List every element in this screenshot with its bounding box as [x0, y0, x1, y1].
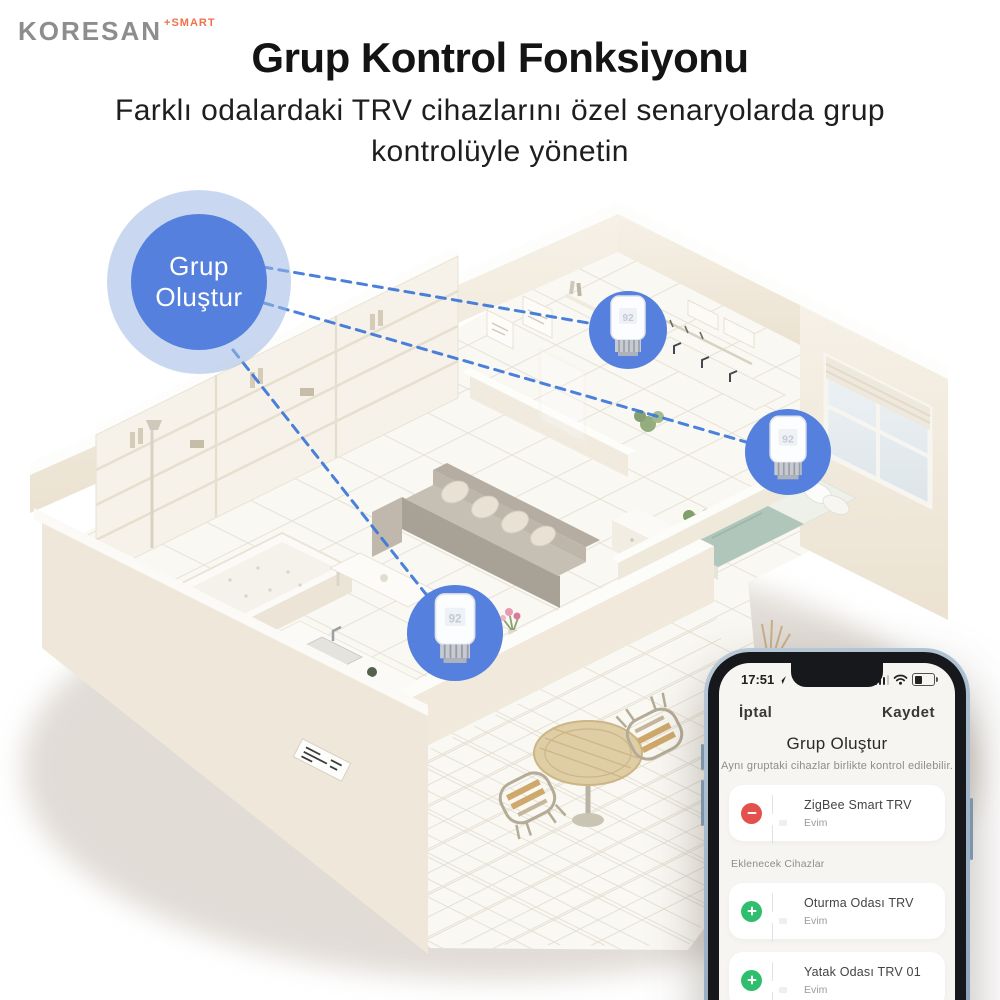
phone-bezel: 17:51 [708, 652, 966, 1000]
trv-thumbnail-icon [772, 963, 794, 997]
trv-marker-bedroom [745, 409, 831, 495]
status-time: 17:51 [741, 672, 774, 687]
device-location: Evim [804, 984, 921, 996]
headline: Grup Kontrol Fonksiyonu Farklı odalardak… [0, 34, 1000, 173]
brand-suffix: +SMART [164, 17, 216, 29]
callout-line1: Grup [169, 251, 229, 281]
sheet-nav: İptal Kaydet [719, 687, 955, 721]
poster-canvas: KORESAN+SMART Grup Kontrol Fonksiyonu Fa… [0, 0, 1000, 1000]
phone-volume-button [701, 780, 704, 826]
section-label: Eklenecek Cihazlar [731, 858, 955, 870]
trv-thumbnail-icon [772, 796, 794, 830]
page-subtitle: Farklı odalardaki TRV cihazlarını özel s… [0, 90, 1000, 173]
trv-marker-hallway [589, 291, 667, 369]
cancel-button[interactable]: İptal [739, 704, 772, 721]
available-device-card[interactable]: Yatak Odası TRV 01 Evim [729, 952, 945, 1000]
phone-mute-switch [701, 744, 704, 770]
trv-marker-living-room [407, 585, 503, 681]
device-location: Evim [804, 915, 914, 927]
add-device-button[interactable] [741, 970, 762, 991]
phone-notch [791, 663, 883, 687]
battery-icon [912, 673, 935, 686]
device-name: Oturma Odası TRV [804, 896, 914, 910]
wifi-icon [893, 674, 908, 685]
group-callout: Grup Oluştur [107, 190, 291, 374]
device-name: ZigBee Smart TRV [804, 798, 912, 812]
save-button[interactable]: Kaydet [882, 704, 935, 721]
app-screen: 17:51 [719, 663, 955, 1000]
phone-mockup: 17:51 [704, 648, 970, 1000]
grouped-device-card[interactable]: ZigBee Smart TRV Evim [729, 785, 945, 841]
add-device-button[interactable] [741, 901, 762, 922]
page-title: Grup Kontrol Fonksiyonu [0, 34, 1000, 82]
device-name: Yatak Odası TRV 01 [804, 965, 921, 979]
sheet-description: Aynı gruptaki cihazlar birlikte kontrol … [719, 760, 955, 772]
remove-device-button[interactable] [741, 803, 762, 824]
phone-power-button [970, 798, 973, 860]
location-arrow-icon [777, 675, 787, 685]
device-location: Evim [804, 817, 912, 829]
available-device-card[interactable]: Oturma Odası TRV Evim [729, 883, 945, 939]
callout-line2: Oluştur [155, 282, 242, 312]
sheet-title: Grup Oluştur [719, 734, 955, 754]
trv-thumbnail-icon [772, 894, 794, 928]
